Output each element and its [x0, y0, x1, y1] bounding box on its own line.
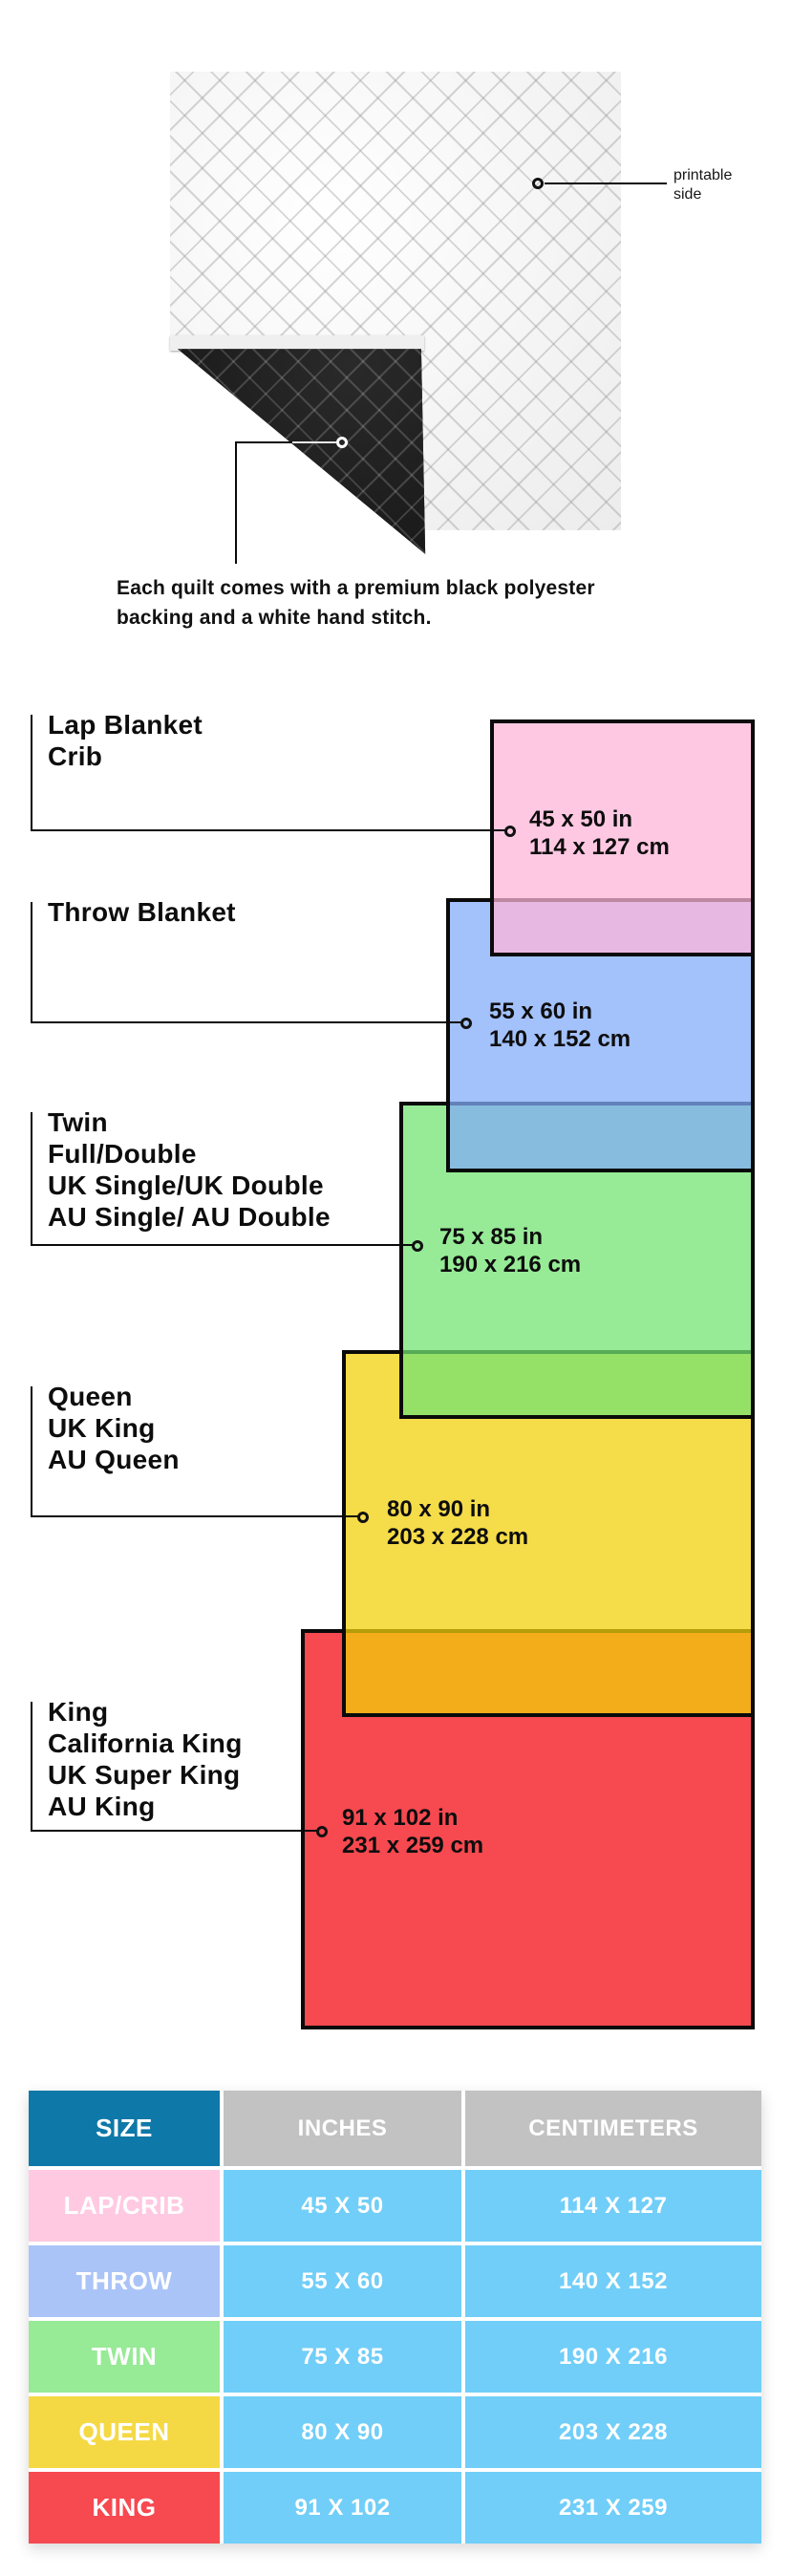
leader-vertical-lap — [31, 715, 32, 831]
label-line: AU Single/ AU Double — [48, 1201, 331, 1233]
dimension-inches: 45 x 50 in — [529, 805, 670, 833]
leader-vertical-king — [31, 1702, 32, 1832]
table-cell-cm: 140 X 152 — [465, 2245, 761, 2317]
dimension-inches: 91 x 102 in — [342, 1804, 483, 1832]
backing-callout-line — [235, 441, 292, 443]
table-row-label-lap-crib: LAP/CRIB — [29, 2170, 220, 2242]
dimension-cm: 140 x 152 cm — [489, 1025, 631, 1053]
leader-marker-throw-icon — [460, 1018, 472, 1029]
label-group-king: King California King UK Super King AU Ki… — [48, 1696, 243, 1822]
quilt-size-infographic: printable side Each quilt comes with a p… — [0, 0, 791, 2576]
table-row-label-twin: TWIN — [29, 2321, 220, 2393]
dimension-cm: 190 x 216 cm — [439, 1251, 581, 1278]
leader-horizontal-king — [31, 1830, 318, 1832]
leader-marker-king-icon — [316, 1826, 328, 1837]
label-group-queen: Queen UK King AU Queen — [48, 1381, 180, 1475]
dimensions-throw: 55 x 60 in 140 x 152 cm — [489, 998, 631, 1053]
leader-marker-queen-icon — [357, 1512, 369, 1523]
printable-side-callout-line — [545, 182, 667, 184]
dimensions-queen: 80 x 90 in 203 x 228 cm — [387, 1495, 528, 1551]
table-cell-inches: 45 X 50 — [224, 2170, 461, 2242]
label-line: Crib — [48, 741, 203, 772]
label-group-lap-crib: Lap Blanket Crib — [48, 709, 203, 772]
leader-marker-lap-icon — [504, 826, 516, 837]
leader-horizontal-twin — [31, 1244, 414, 1246]
quilt-fold-crease — [170, 335, 424, 351]
backing-marker-icon — [336, 437, 348, 448]
label-line: Throw Blanket — [48, 896, 236, 928]
quilt-caption-line1: Each quilt comes with a premium black po… — [117, 573, 595, 603]
leader-horizontal-queen — [31, 1515, 359, 1517]
dimensions-king: 91 x 102 in 231 x 259 cm — [342, 1804, 483, 1859]
table-cell-inches: 75 X 85 — [224, 2321, 461, 2393]
leader-vertical-twin — [31, 1112, 32, 1246]
label-line: Lap Blanket — [48, 709, 203, 741]
label-line: UK King — [48, 1412, 180, 1444]
label-line: UK Single/UK Double — [48, 1170, 331, 1201]
table-cell-cm: 114 X 127 — [465, 2170, 761, 2242]
leader-vertical-queen — [31, 1386, 32, 1517]
backing-callout-line-vertical — [235, 441, 237, 564]
label-line: AU Queen — [48, 1444, 180, 1475]
label-group-throw: Throw Blanket — [48, 896, 236, 928]
leader-horizontal-throw — [31, 1021, 462, 1023]
dimension-inches: 75 x 85 in — [439, 1223, 581, 1251]
dimensions-twin: 75 x 85 in 190 x 216 cm — [439, 1223, 581, 1278]
quilt-illustration — [170, 72, 621, 559]
leader-horizontal-lap — [31, 829, 506, 831]
size-table: SIZE INCHES CENTIMETERS LAP/CRIB 45 X 50… — [29, 2091, 761, 2544]
label-line: UK Super King — [48, 1759, 243, 1791]
label-line: Twin — [48, 1106, 331, 1138]
label-line: King — [48, 1696, 243, 1728]
printable-side-label: printable side — [673, 166, 754, 204]
backing-callout-line-on-black — [292, 441, 336, 443]
quilt-caption: Each quilt comes with a premium black po… — [117, 573, 595, 633]
dimension-cm: 231 x 259 cm — [342, 1832, 483, 1859]
table-header-centimeters: CENTIMETERS — [465, 2091, 761, 2166]
label-line: Full/Double — [48, 1138, 331, 1170]
table-cell-cm: 190 X 216 — [465, 2321, 761, 2393]
table-row-label-king: KING — [29, 2472, 220, 2544]
table-cell-inches: 80 X 90 — [224, 2396, 461, 2468]
printable-side-marker-icon — [532, 178, 544, 189]
table-cell-cm: 203 X 228 — [465, 2396, 761, 2468]
label-line: California King — [48, 1728, 243, 1759]
dimension-cm: 114 x 127 cm — [529, 833, 670, 861]
table-row-label-queen: QUEEN — [29, 2396, 220, 2468]
dimension-inches: 80 x 90 in — [387, 1495, 528, 1523]
table-cell-inches: 55 X 60 — [224, 2245, 461, 2317]
label-line: Queen — [48, 1381, 180, 1412]
dimensions-lap-crib: 45 x 50 in 114 x 127 cm — [529, 805, 670, 861]
dimension-cm: 203 x 228 cm — [387, 1523, 528, 1551]
table-header-size: SIZE — [29, 2091, 220, 2166]
dimension-inches: 55 x 60 in — [489, 998, 631, 1025]
leader-vertical-throw — [31, 902, 32, 1023]
quilt-caption-line2: backing and a white hand stitch. — [117, 603, 595, 633]
table-header-inches: INCHES — [224, 2091, 461, 2166]
table-row-label-throw: THROW — [29, 2245, 220, 2317]
label-group-twin: Twin Full/Double UK Single/UK Double AU … — [48, 1106, 331, 1233]
label-line: AU King — [48, 1791, 243, 1822]
table-cell-cm: 231 X 259 — [465, 2472, 761, 2544]
leader-marker-twin-icon — [412, 1240, 423, 1252]
table-cell-inches: 91 X 102 — [224, 2472, 461, 2544]
